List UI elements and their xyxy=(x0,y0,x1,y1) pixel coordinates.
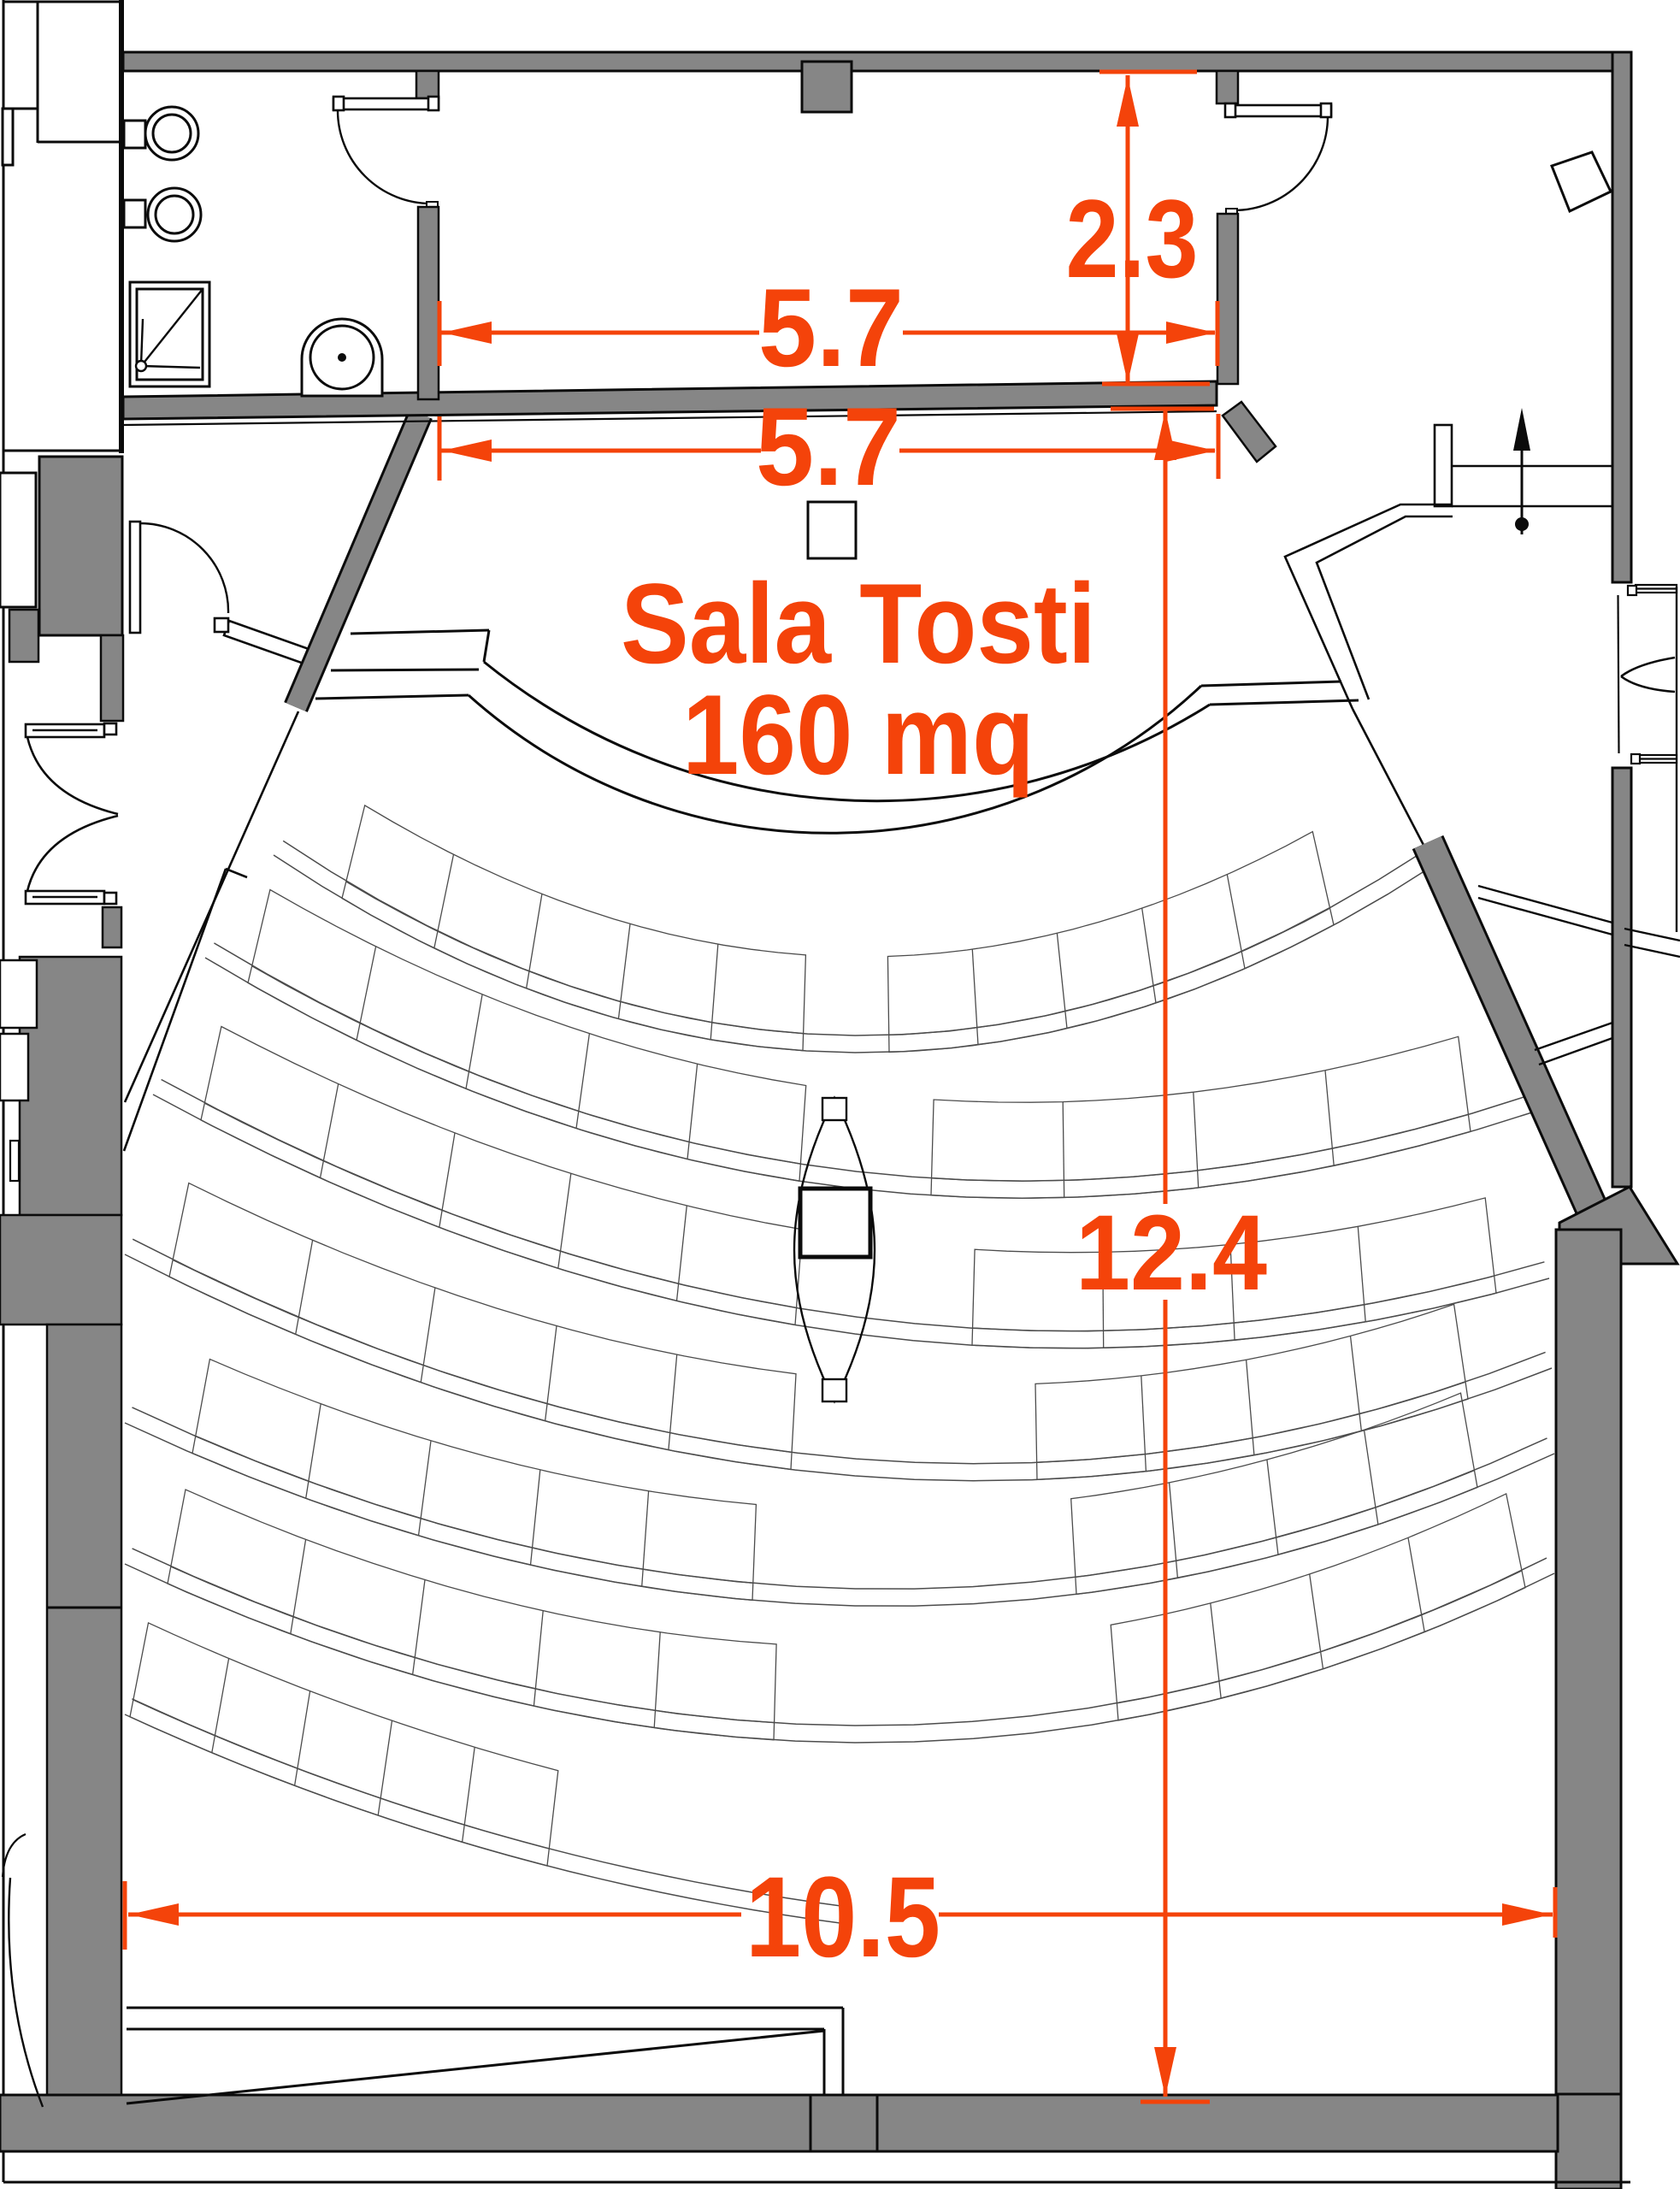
svg-text:12.4: 12.4 xyxy=(1076,1194,1267,1313)
svg-text:5.7: 5.7 xyxy=(758,265,904,390)
svg-text:160 mq: 160 mq xyxy=(682,672,1035,799)
svg-text:Sala Tosti: Sala Tosti xyxy=(621,561,1096,687)
svg-text:2.3: 2.3 xyxy=(1066,176,1199,301)
svg-text:5.7: 5.7 xyxy=(756,384,901,509)
svg-text:10.5: 10.5 xyxy=(746,1854,940,1981)
